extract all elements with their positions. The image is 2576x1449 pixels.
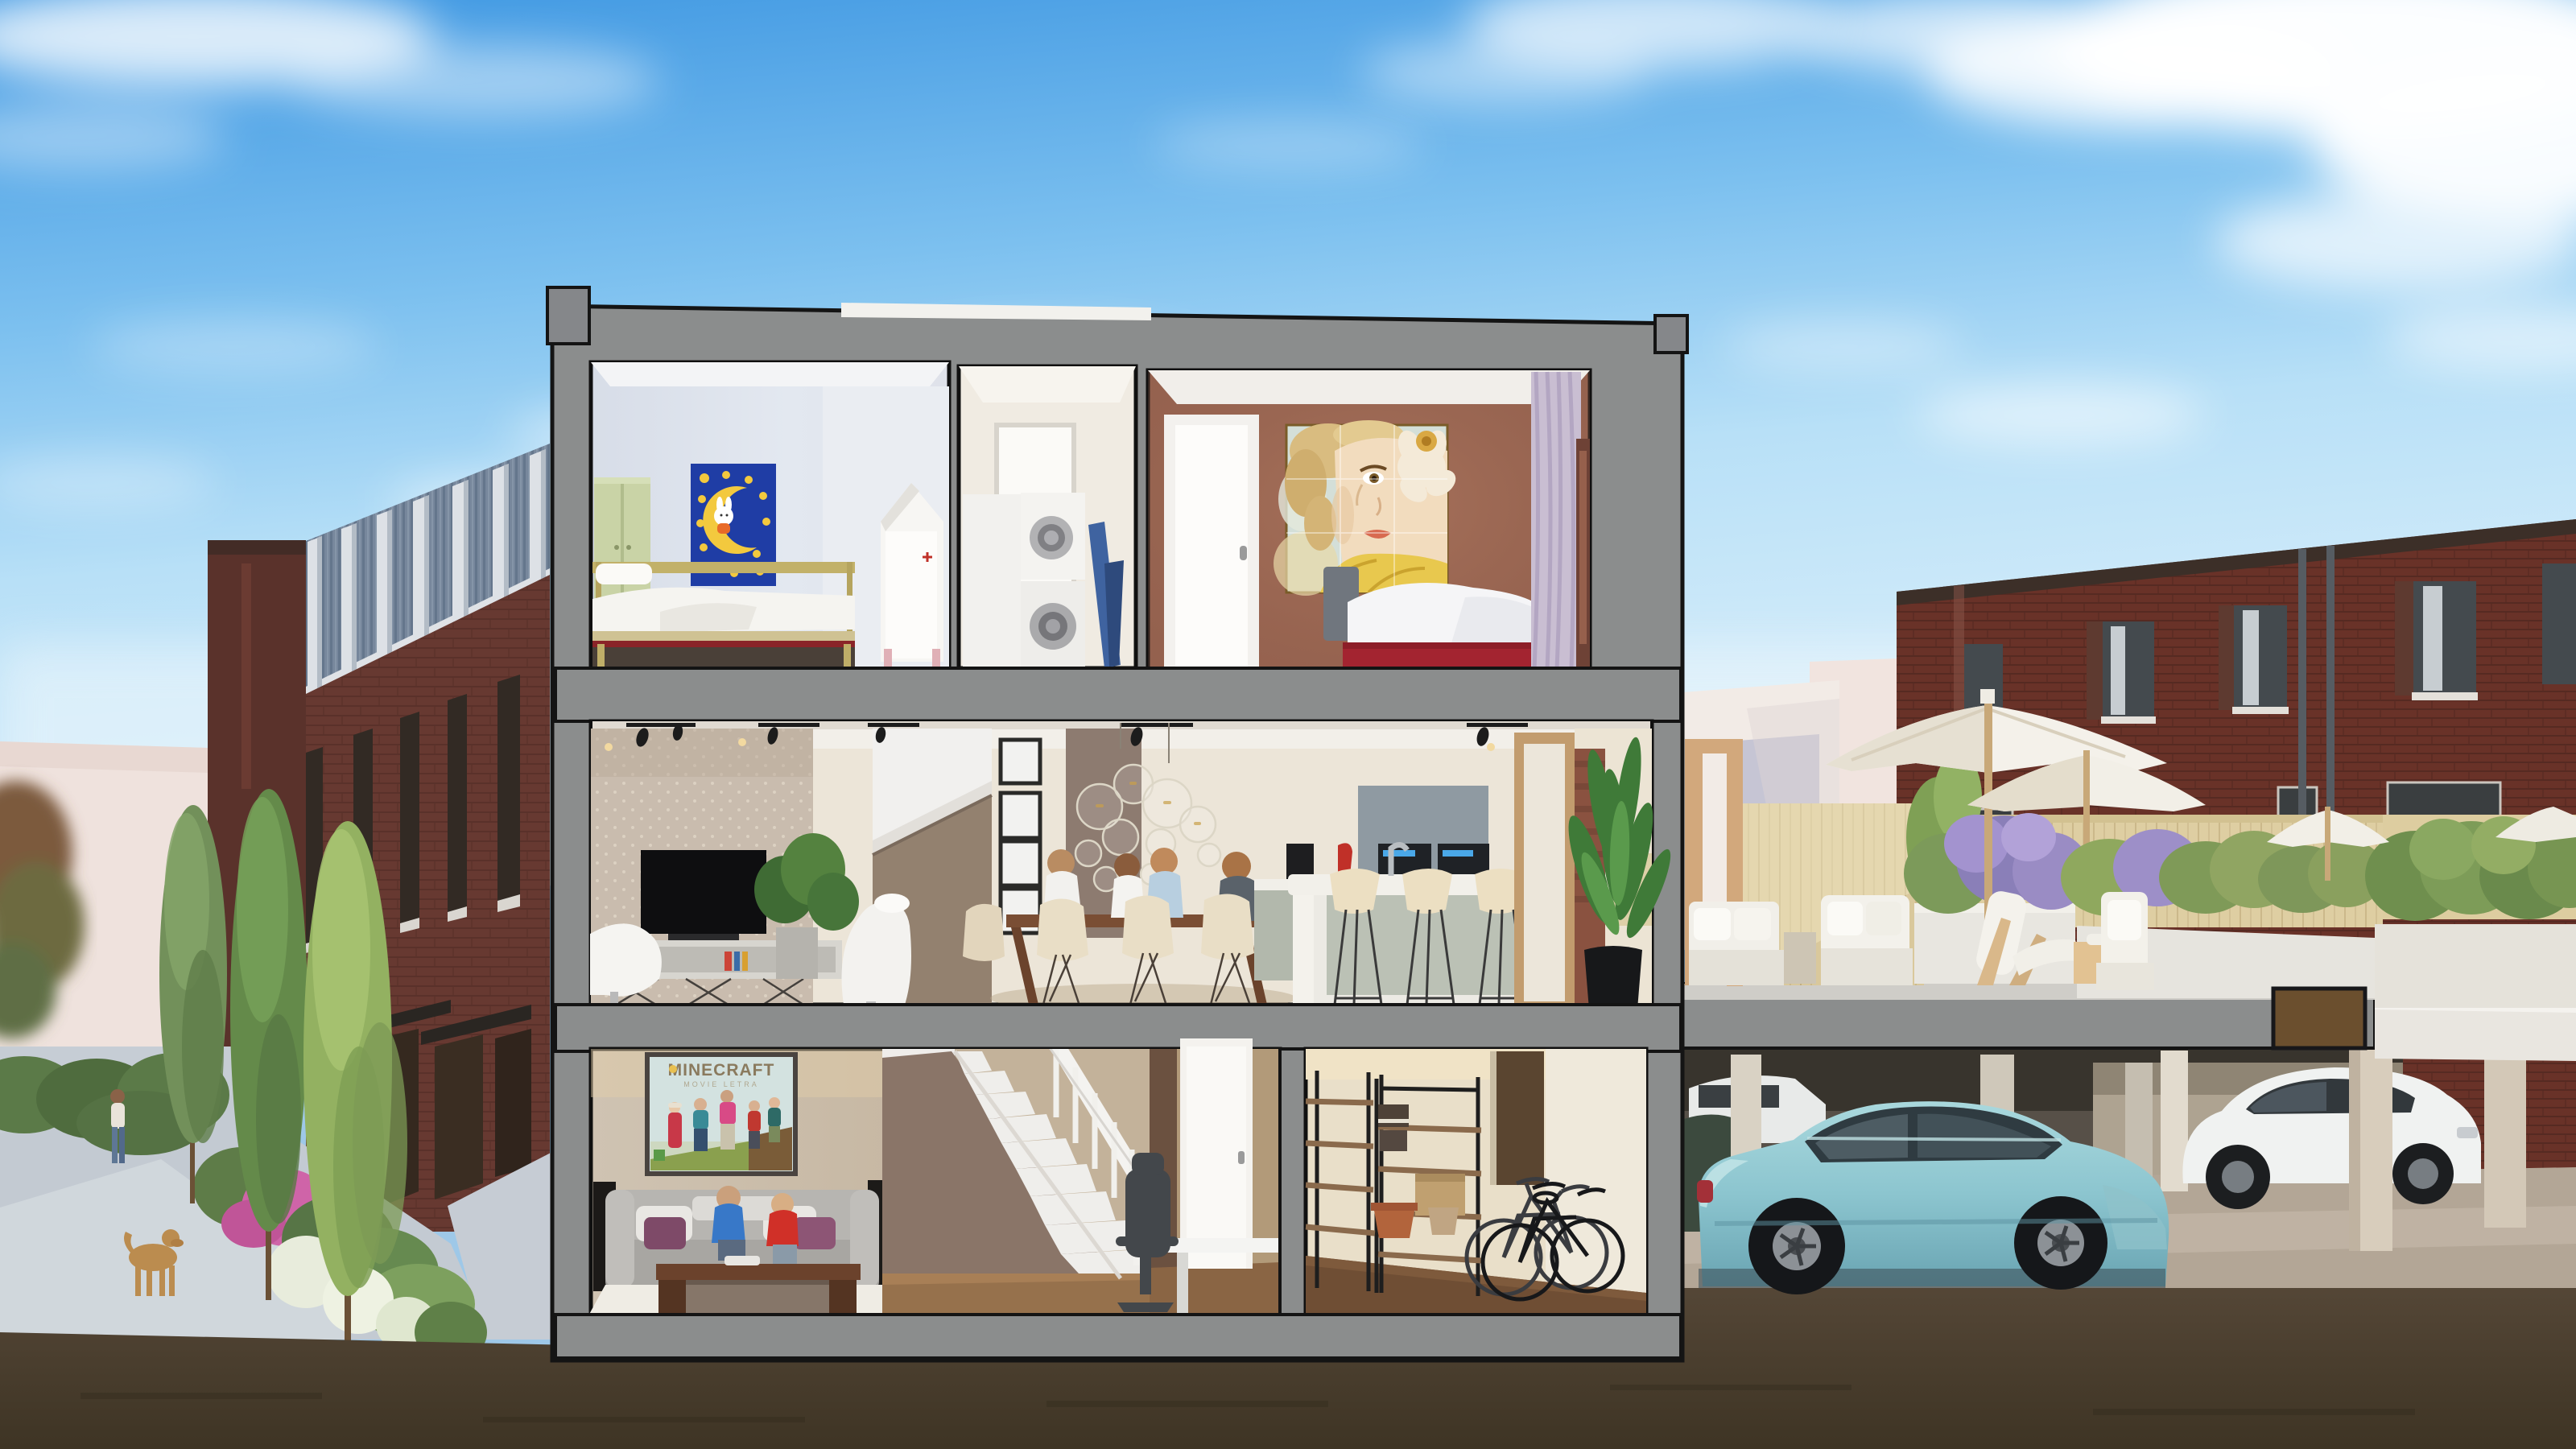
svg-text:MINECRAFT: MINECRAFT <box>668 1061 775 1080</box>
svg-text:MOVIE LETRA: MOVIE LETRA <box>683 1080 759 1088</box>
